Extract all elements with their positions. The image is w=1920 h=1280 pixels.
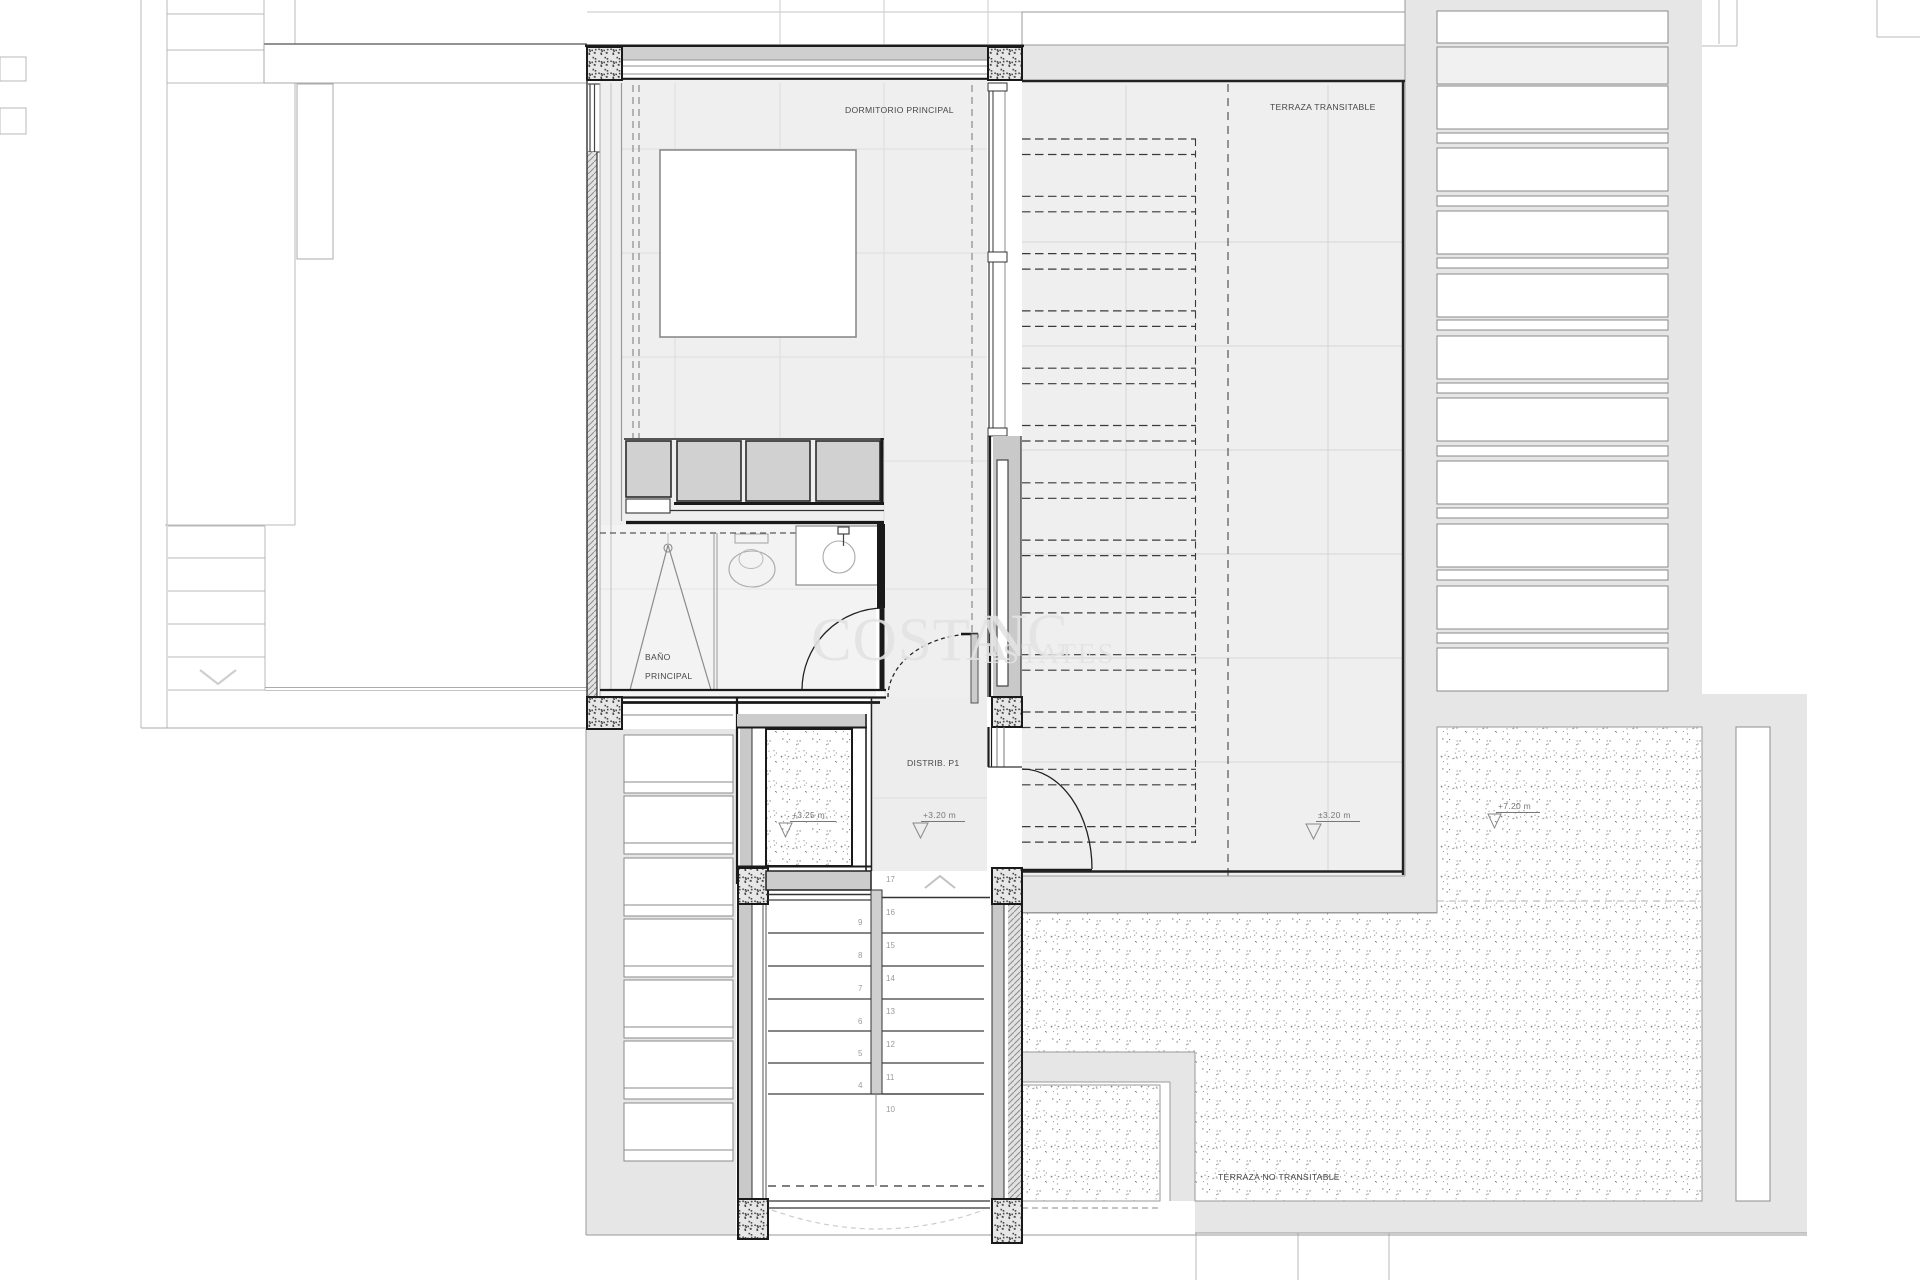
- svg-text:16: 16: [886, 908, 895, 917]
- svg-text:7: 7: [858, 984, 863, 993]
- svg-text:COSTA: COSTA: [811, 607, 1011, 674]
- svg-text:TERRAZA NO TRANSITABLE: TERRAZA NO TRANSITABLE: [1218, 1172, 1340, 1182]
- svg-text:17: 17: [886, 875, 895, 884]
- svg-text:+3.25 m: +3.25 m: [792, 810, 825, 820]
- svg-text:+3.20 m: +3.20 m: [923, 810, 956, 820]
- svg-text:11: 11: [886, 1073, 895, 1082]
- svg-text:10: 10: [886, 1105, 895, 1114]
- svg-text:4: 4: [858, 1081, 863, 1090]
- svg-text:±3.20 m: ±3.20 m: [1318, 810, 1351, 820]
- svg-text:15: 15: [886, 941, 895, 950]
- svg-text:12: 12: [886, 1040, 895, 1049]
- svg-text:+7.20 m: +7.20 m: [1498, 801, 1531, 811]
- svg-text:PRINCIPAL: PRINCIPAL: [645, 671, 692, 681]
- svg-text:6: 6: [858, 1017, 863, 1026]
- svg-text:5: 5: [858, 1049, 863, 1058]
- svg-text:14: 14: [886, 974, 895, 983]
- svg-text:TERRAZA TRANSITABLE: TERRAZA TRANSITABLE: [1270, 102, 1376, 112]
- svg-text:BAÑO: BAÑO: [645, 652, 671, 662]
- svg-text:13: 13: [886, 1007, 895, 1016]
- svg-text:8: 8: [858, 951, 863, 960]
- svg-text:DISTRIB. P1: DISTRIB. P1: [907, 758, 960, 768]
- svg-text:DORMITORIO PRINCIPAL: DORMITORIO PRINCIPAL: [845, 105, 954, 115]
- svg-text:9: 9: [858, 918, 863, 927]
- svg-text:ESTATES: ESTATES: [983, 638, 1116, 670]
